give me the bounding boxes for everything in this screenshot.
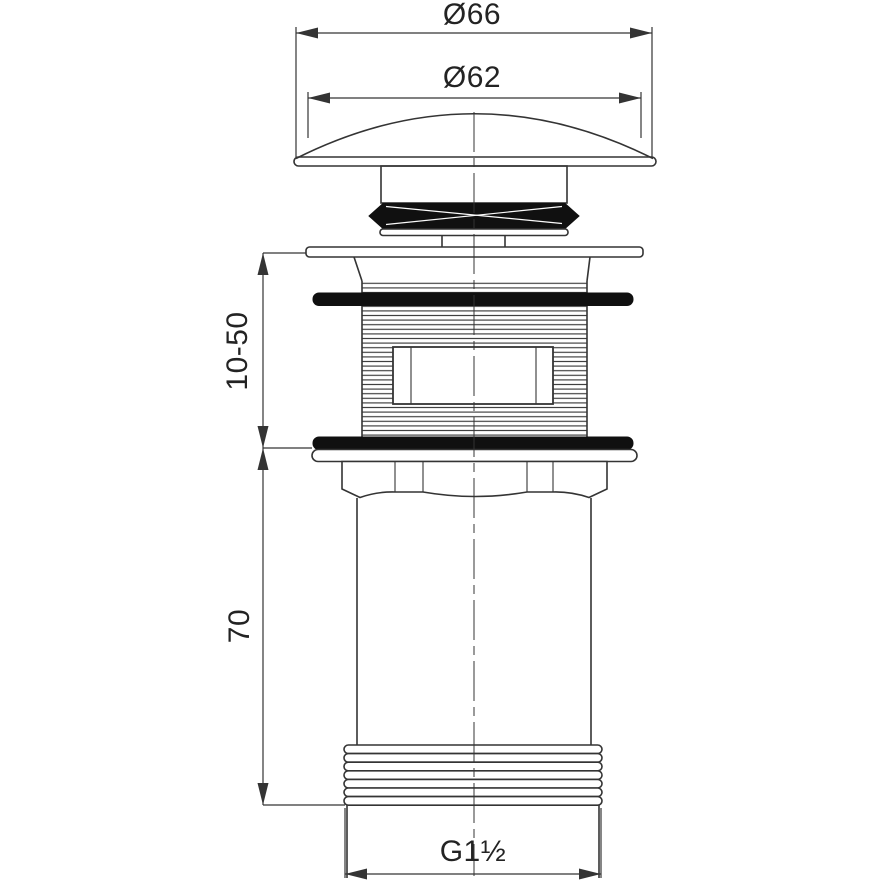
dimension-tailpiece-length: 70: [223, 448, 345, 805]
dimension-label-tailpiece-length: 70: [223, 609, 256, 643]
cap-rim: [294, 157, 656, 166]
lower-seal-washer: [313, 437, 633, 450]
outlet-thread-ridges: [344, 745, 602, 805]
dome-cap: [294, 114, 656, 166]
dimension-label-cap-outer: Ø66: [443, 0, 501, 31]
dimension-label-clamping-range: 10-50: [221, 311, 254, 390]
dimension-label-cap-face: Ø62: [443, 61, 501, 94]
dimension-outlet-thread: G1½: [345, 808, 601, 880]
overflow-slot-opening: [393, 347, 553, 404]
technical-drawing-canvas: Ø66 Ø62 10-50 70 G1½: [0, 0, 880, 880]
dimension-clamping-range: 10-50: [221, 253, 312, 448]
dimension-label-outlet-thread: G1½: [440, 835, 507, 868]
overflow-slot: [393, 347, 553, 404]
basin-waste-drawing: Ø66 Ø62 10-50 70 G1½: [0, 0, 880, 880]
upper-o-ring: [313, 293, 633, 306]
